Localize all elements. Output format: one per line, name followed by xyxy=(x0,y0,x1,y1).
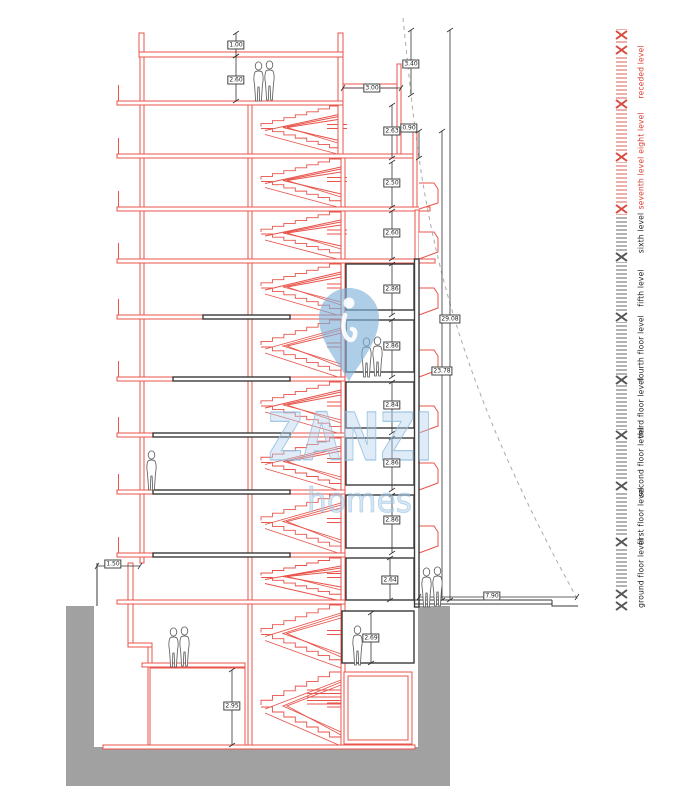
dimension-label: 2.50 xyxy=(383,179,400,188)
dimension-label: 1.00 xyxy=(227,41,244,50)
level-ruler xyxy=(615,30,628,611)
person-figure xyxy=(254,62,263,101)
dimension-label: 2.95 xyxy=(223,702,240,711)
dimension-label: 2.86 xyxy=(383,516,400,525)
level-label: ground floor level xyxy=(637,538,646,608)
building-section-drawing: ZANZI homes xyxy=(0,0,699,800)
dimension-label: 1.50 xyxy=(104,560,121,569)
level-label: fifth level xyxy=(637,269,646,306)
dimension-label: 0.90 xyxy=(400,124,417,133)
dimension-label: 2.60 xyxy=(383,229,400,238)
level-label: seventh level xyxy=(637,157,646,210)
dimension-label: 2.63 xyxy=(383,127,400,136)
level-label: eight level xyxy=(637,112,646,154)
dimension-label: 2.60 xyxy=(227,76,244,85)
dimension-label: 3.00 xyxy=(363,84,380,93)
dimension-label: 23.78 xyxy=(431,367,452,376)
level-label: third floor level xyxy=(637,378,646,438)
dimension-label: 7.90 xyxy=(483,592,500,601)
dimension-label: 2.86 xyxy=(383,459,400,468)
level-label: fourth floor level xyxy=(637,315,646,381)
level-label: receded level xyxy=(637,45,646,98)
person-figure xyxy=(265,61,274,100)
dimension-label: 2.86 xyxy=(383,285,400,294)
level-label: sixth level xyxy=(637,213,646,254)
dimension-label: 29.08 xyxy=(439,315,460,324)
person-figure xyxy=(422,568,431,607)
dimension-label: 2.84 xyxy=(383,401,400,410)
person-figure xyxy=(169,628,178,667)
dimension-lines xyxy=(95,28,579,747)
page: ZANZI homes 1.002.603.403.002.630.902.50… xyxy=(0,0,699,800)
person-figure xyxy=(180,627,189,666)
person-figure xyxy=(147,451,156,490)
dimension-label: 3.40 xyxy=(402,60,419,69)
dimension-label: 2.64 xyxy=(381,576,398,585)
watermark-brand: ZANZI xyxy=(268,399,433,476)
dimension-label: 2.69 xyxy=(362,634,379,643)
dimension-label: 2.86 xyxy=(383,342,400,351)
